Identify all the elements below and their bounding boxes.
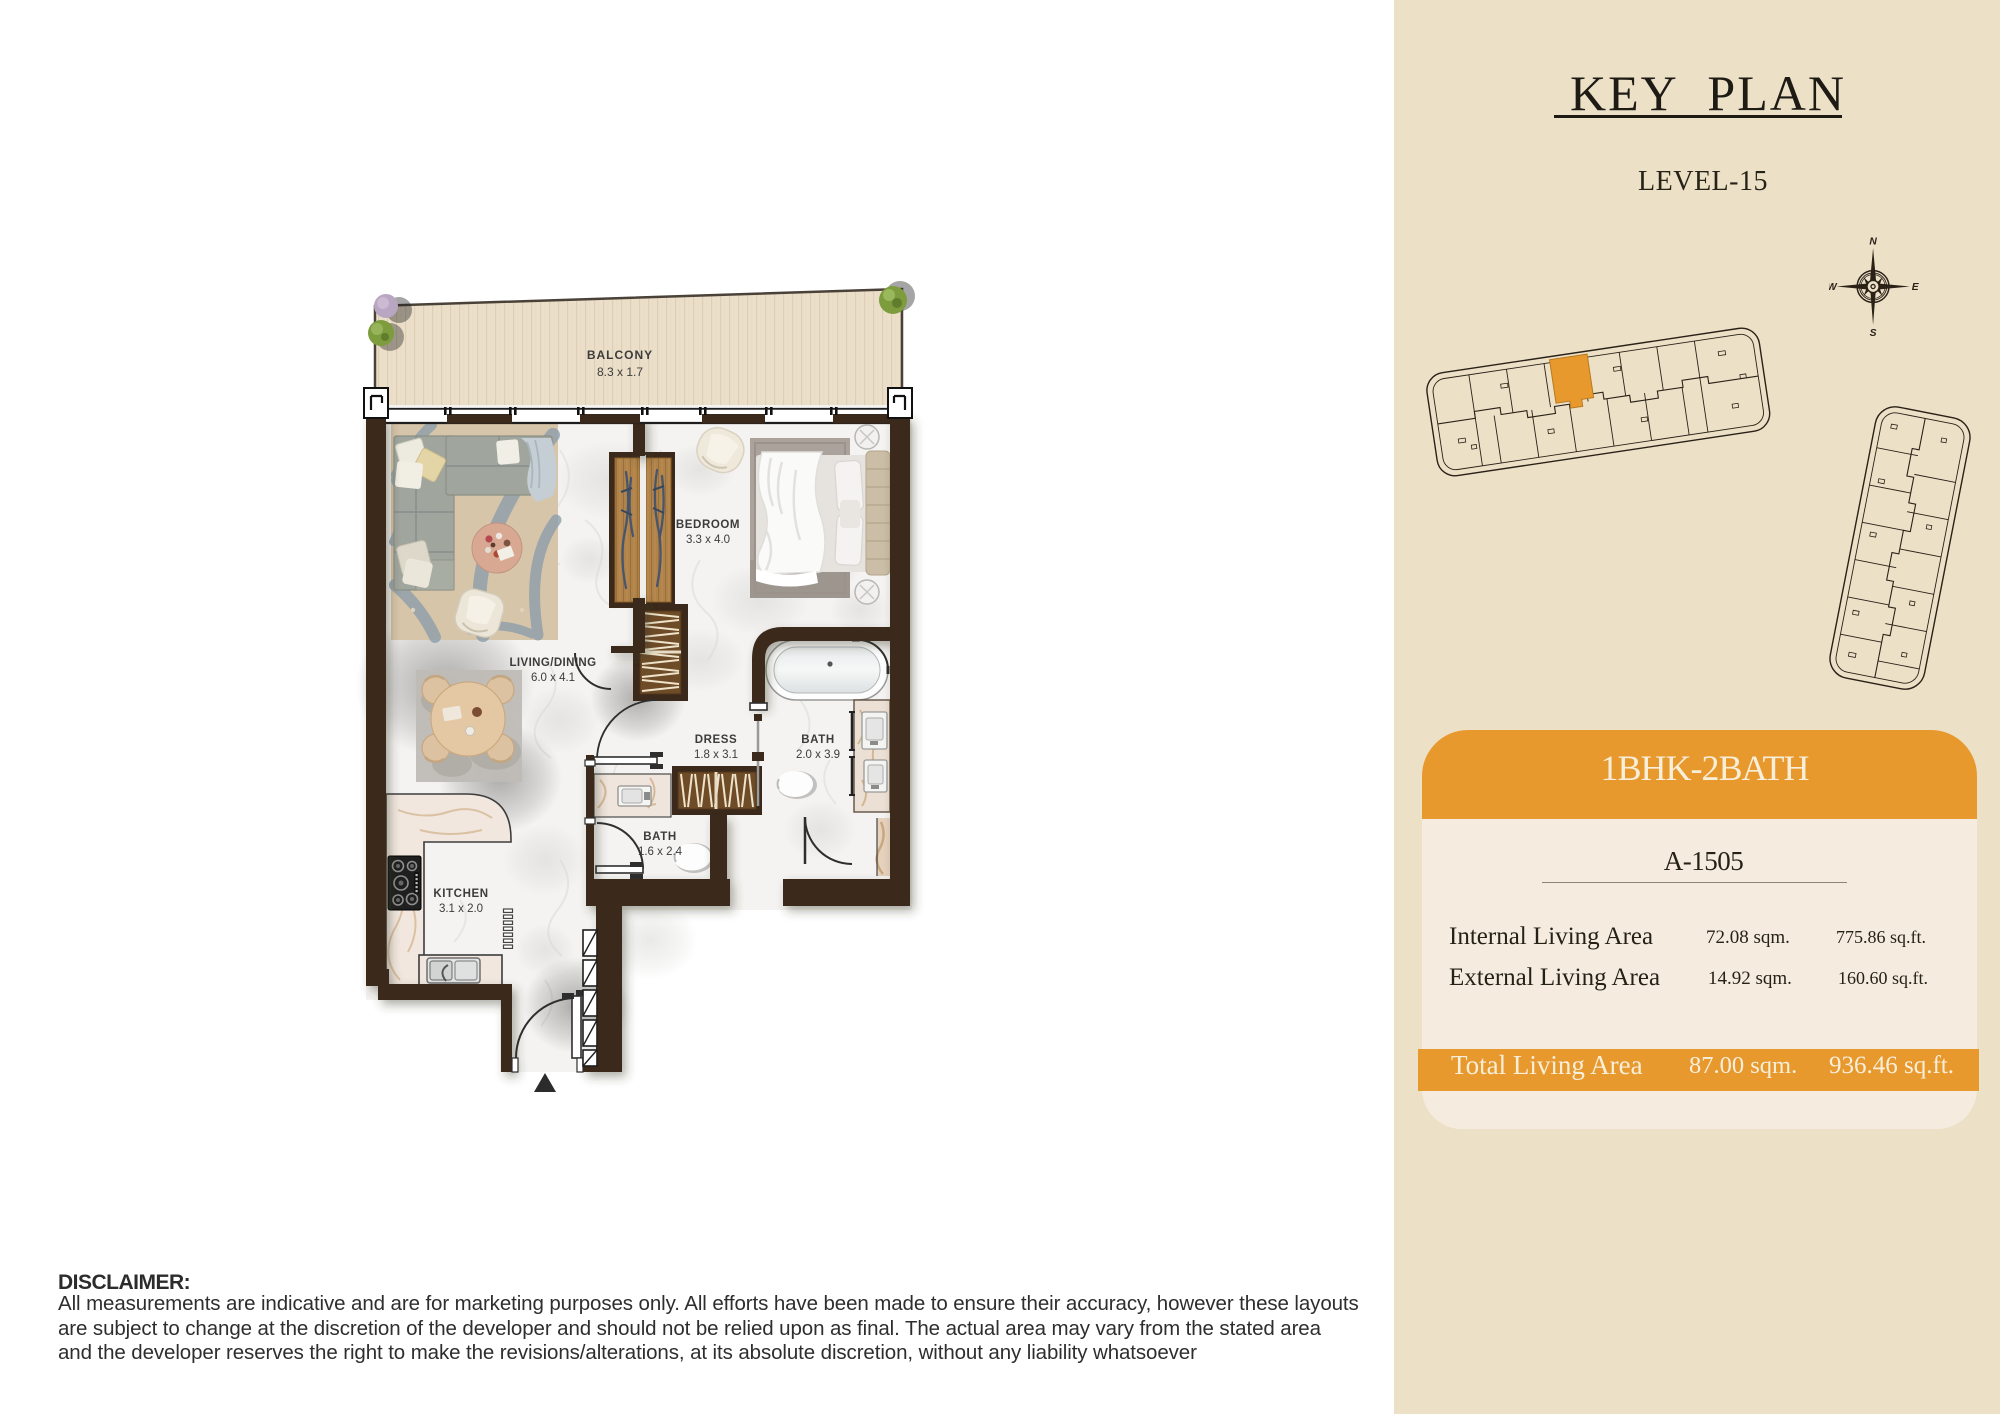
svg-text:BATH: BATH xyxy=(801,734,835,746)
svg-text:BALCONY: BALCONY xyxy=(587,348,653,362)
svg-text:DRESS: DRESS xyxy=(695,734,738,746)
svg-text:W: W xyxy=(1829,282,1838,293)
svg-text:8.3 x 1.7: 8.3 x 1.7 xyxy=(597,365,643,379)
svg-text:2.0 x 3.9: 2.0 x 3.9 xyxy=(796,749,840,761)
svg-text:3.1 x 2.0: 3.1 x 2.0 xyxy=(439,903,483,915)
svg-text:BATH: BATH xyxy=(643,831,677,843)
svg-text:KITCHEN: KITCHEN xyxy=(433,888,488,900)
svg-text:1.6 x 2.4: 1.6 x 2.4 xyxy=(638,846,683,858)
svg-text:1.8 x 3.1: 1.8 x 3.1 xyxy=(694,749,738,761)
svg-text:3.3 x 4.0: 3.3 x 4.0 xyxy=(686,534,730,546)
svg-text:LIVING/DINING: LIVING/DINING xyxy=(510,657,597,669)
svg-text:E: E xyxy=(1912,282,1919,293)
svg-text:BEDROOM: BEDROOM xyxy=(676,519,740,531)
svg-text:N: N xyxy=(1869,236,1877,247)
svg-text:6.0 x 4.1: 6.0 x 4.1 xyxy=(531,672,575,684)
svg-text:S: S xyxy=(1870,328,1877,338)
